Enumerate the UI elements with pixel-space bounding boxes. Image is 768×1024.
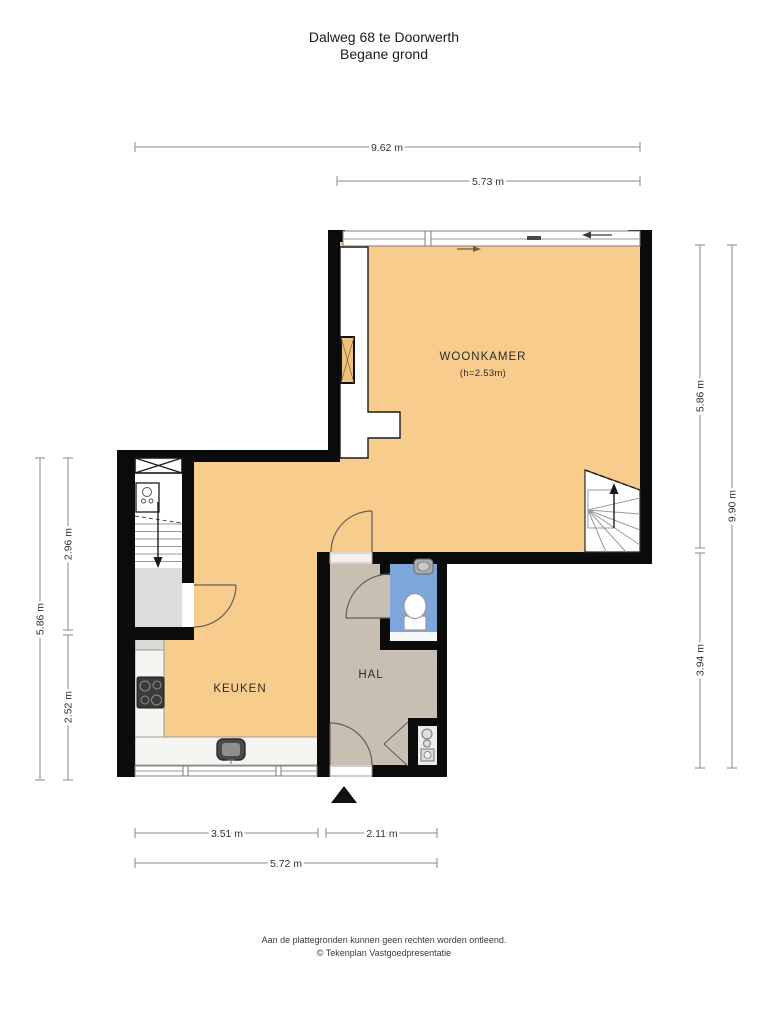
svg-text:2.11 m: 2.11 m xyxy=(366,828,398,840)
svg-text:2.96 m: 2.96 m xyxy=(63,528,75,560)
floorplan-canvas: Dalweg 68 te Doorwerth Begane grond xyxy=(0,0,768,1024)
svg-text:9.62 m: 9.62 m xyxy=(371,142,403,154)
livingroom-label: WOONKAMER xyxy=(440,351,527,363)
footer-copyright: © Tekenplan Vastgoedpresentatie xyxy=(317,948,451,958)
hall-door-threshold xyxy=(330,553,372,563)
wall-livingroom-left xyxy=(328,230,340,462)
kitchen-label: KEUKEN xyxy=(213,683,266,695)
plan-subtitle: Begane grond xyxy=(340,46,428,62)
wall-stairwell-right xyxy=(182,462,194,583)
livingroom-height-note: (h=2.53m) xyxy=(460,368,506,379)
kitchen-window-divider-2 xyxy=(276,766,281,776)
toilet-floor-strip xyxy=(390,632,437,641)
svg-text:3.94 m: 3.94 m xyxy=(695,644,707,676)
svg-text:5.86 m: 5.86 m xyxy=(35,603,47,635)
toilet-bowl xyxy=(404,594,426,631)
stair-landing xyxy=(135,568,182,627)
hall-label: HAL xyxy=(358,669,383,681)
svg-text:5.73 m: 5.73 m xyxy=(472,176,504,188)
kitchen-sink xyxy=(217,739,245,764)
livingroom-window-divider xyxy=(425,231,431,246)
wall-hall-right xyxy=(437,552,447,777)
wall-toilet-left-lower xyxy=(380,618,390,645)
wall-livingroom-bottom xyxy=(433,552,652,564)
livingroom-window-latch xyxy=(527,236,541,240)
wall-toilet-left-upper xyxy=(380,564,390,575)
floorplan-page: Dalweg 68 te Doorwerth Begane grond xyxy=(0,0,768,1024)
wall-toilet-bottom xyxy=(380,641,447,650)
toilet-basin xyxy=(414,559,433,574)
svg-text:9.90 m: 9.90 m xyxy=(727,490,739,522)
svg-text:5.86 m: 5.86 m xyxy=(695,380,707,412)
wall-meter-closet-left xyxy=(408,718,418,777)
svg-text:2.52 m: 2.52 m xyxy=(63,691,75,723)
wall-livingroom-right xyxy=(640,230,652,564)
void-crossbox xyxy=(135,458,182,473)
wall-lowerblock-left xyxy=(117,450,135,777)
wall-bottom-corner-left xyxy=(117,765,135,777)
svg-text:5.72 m: 5.72 m xyxy=(270,858,302,870)
cooktop xyxy=(137,677,164,708)
wall-stairwell-bottom xyxy=(135,627,194,640)
front-door-threshold xyxy=(330,766,372,776)
wall-bottom-pier xyxy=(317,765,330,777)
footer-disclaimer: Aan de plattegronden kunnen geen rechten… xyxy=(262,935,507,945)
wall-meter-closet-top xyxy=(408,718,447,726)
svg-text:3.51 m: 3.51 m xyxy=(211,828,243,840)
wall-hall-top xyxy=(372,552,447,564)
wall-niche-panel xyxy=(341,337,354,383)
boiler xyxy=(136,483,159,512)
plan-title: Dalweg 68 te Doorwerth xyxy=(309,29,459,45)
wall-hall-left xyxy=(317,552,330,765)
kitchen-window-divider-1 xyxy=(183,766,188,776)
